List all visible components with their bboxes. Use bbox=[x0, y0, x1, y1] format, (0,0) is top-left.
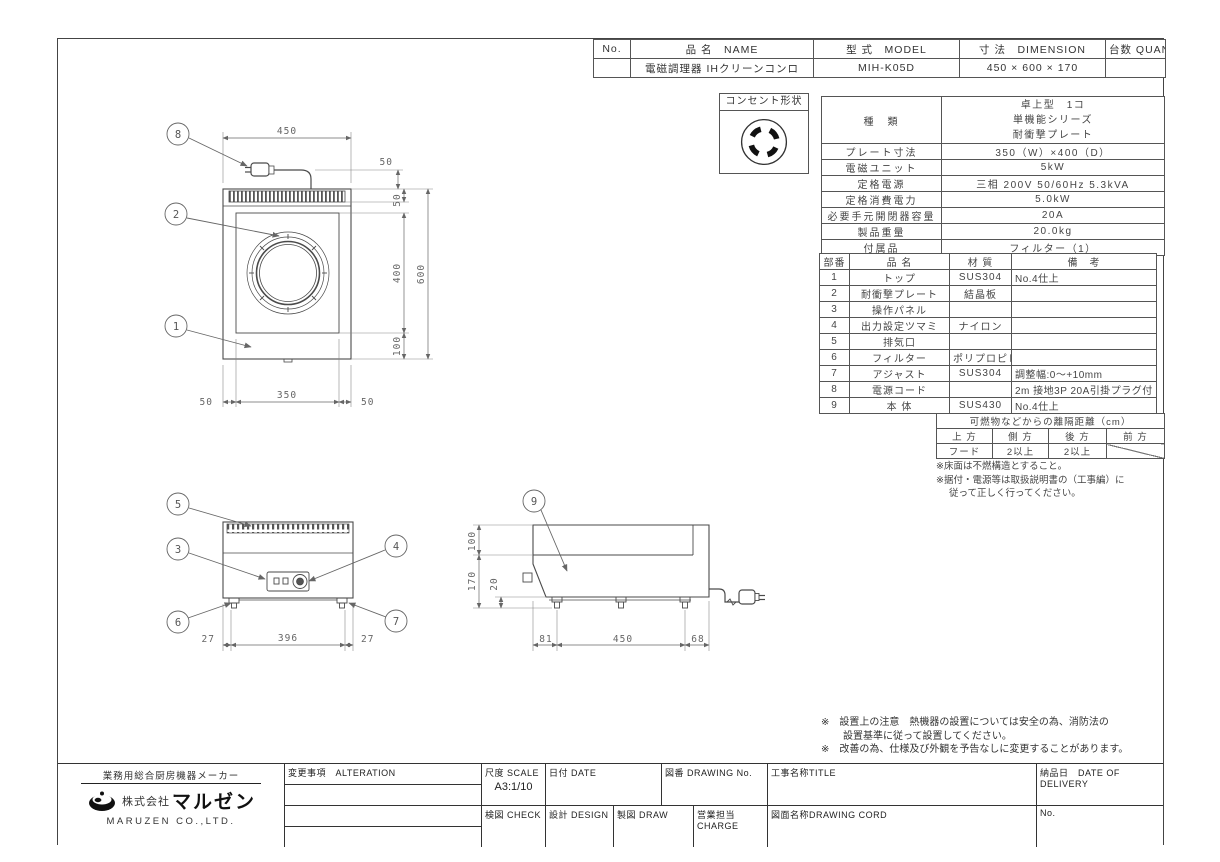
maker-tagline: 業務用総合厨房機器メーカー bbox=[81, 768, 261, 784]
dim-side-foot: 20 bbox=[489, 577, 500, 590]
part-material: ナイロン bbox=[950, 318, 1012, 334]
dim-plan-bottom: 100 bbox=[392, 336, 403, 356]
drawing-no-label: 図番 DRAWING No. bbox=[662, 764, 767, 779]
control-panel bbox=[267, 572, 309, 591]
side-dimensions bbox=[473, 525, 709, 651]
dim-side-back: 81 bbox=[539, 634, 552, 645]
design-label: 設計 DESIGN bbox=[546, 806, 613, 821]
callout-1-label: 1 bbox=[173, 321, 179, 333]
part-remark: No.4仕上 bbox=[1012, 398, 1157, 414]
dim-plan-left: 50 bbox=[200, 397, 213, 408]
clearance-value-row: フード 2以上 2以上 bbox=[937, 444, 1165, 459]
dim-front-span: 396 bbox=[278, 633, 298, 644]
scale-value: A3:1/10 bbox=[482, 781, 545, 793]
spec-value: 5.0kW bbox=[942, 192, 1165, 208]
parts-row: 4出力設定ツマミナイロン bbox=[820, 318, 1157, 334]
clearance-col: 側 方 bbox=[993, 429, 1049, 444]
heater-circle bbox=[247, 232, 329, 314]
part-remark bbox=[1012, 350, 1157, 366]
maruzen-logo-icon bbox=[86, 790, 118, 812]
dim-front-left: 27 bbox=[202, 634, 215, 645]
clearance-col: 後 方 bbox=[1049, 429, 1107, 444]
scale-cell: 尺度 SCALE A3:1/10 bbox=[481, 764, 545, 805]
clearance-notes: ※床面は不燃構造とすること。 ※据付・電源等は取扱説明書の（工事編）に 従って正… bbox=[936, 460, 1186, 501]
title-block: 業務用総合厨房機器メーカー 株式会社 マルゼン MARUZEN CO.,LTD.… bbox=[58, 763, 1163, 847]
note-line: 設置基準に従って設置してください。 bbox=[821, 730, 1171, 744]
draw-label: 製図 DRAW bbox=[614, 806, 693, 821]
product-no bbox=[594, 59, 631, 78]
clearance-title: 可燃物などからの離隔距離（cm） bbox=[937, 414, 1165, 429]
title-label: 工事名称TITLE bbox=[768, 764, 1036, 779]
part-no: 4 bbox=[820, 318, 850, 334]
spec-value: 350（W）×400（D） bbox=[942, 144, 1165, 160]
clearance-table: 可燃物などからの離隔距離（cm） 上 方 側 方 後 方 前 方 フード 2以上… bbox=[936, 413, 1165, 459]
header-row: No. 品 名 NAME 型 式 MODEL 寸 法 DIMENSION 台数 … bbox=[594, 40, 1166, 59]
date-label: 日付 DATE bbox=[546, 764, 661, 779]
part-name: 電源コード bbox=[850, 382, 950, 398]
dim-plan-overall-depth: 600 bbox=[416, 264, 427, 284]
header-table: No. 品 名 NAME 型 式 MODEL 寸 法 DIMENSION 台数 … bbox=[593, 39, 1166, 78]
note-line: ※ 設置上の注意 熱機器の設置については安全の為、消防法の bbox=[821, 716, 1171, 730]
parts-header-row: 部番 品 名 材 質 備 考 bbox=[820, 254, 1157, 270]
drawing-cord-cell: 図面名称DRAWING CORD bbox=[767, 805, 1036, 847]
dim-side-front: 68 bbox=[691, 634, 704, 645]
clearance-value-na bbox=[1107, 444, 1165, 459]
part-material: 結晶板 bbox=[950, 286, 1012, 302]
check-label: 検図 CHECK bbox=[482, 806, 545, 821]
company-name-en: MARUZEN CO.,LTD. bbox=[58, 816, 284, 827]
part-material bbox=[950, 334, 1012, 350]
parts-col: 品 名 bbox=[850, 254, 950, 270]
twist-lock-plug-icon bbox=[736, 114, 792, 170]
spec-label-kind: 種 類 bbox=[822, 97, 942, 144]
spec-label: 定格電源 bbox=[822, 176, 942, 192]
front-view bbox=[223, 522, 353, 608]
spec-value: 20.0kg bbox=[942, 224, 1165, 240]
callout-7-label: 7 bbox=[393, 616, 399, 628]
part-no: 8 bbox=[820, 382, 850, 398]
part-remark bbox=[1012, 334, 1157, 350]
dim-plan-right: 50 bbox=[361, 397, 374, 408]
part-material bbox=[950, 382, 1012, 398]
part-name: トップ bbox=[850, 270, 950, 286]
col-dimension: 寸 法 DIMENSION bbox=[960, 40, 1106, 59]
delivery-label: 納品日 DATE OF DELIVERY bbox=[1037, 764, 1163, 789]
note-line: ※ 改善の為、仕様及び外観を予告なしに変更することがあります。 bbox=[821, 743, 1171, 757]
part-no: 1 bbox=[820, 270, 850, 286]
feet-side bbox=[552, 597, 690, 608]
part-material: SUS430 bbox=[950, 398, 1012, 414]
callout-9-label: 9 bbox=[531, 496, 537, 508]
parts-col: 備 考 bbox=[1012, 254, 1157, 270]
product-dimension: 450 × 600 × 170 bbox=[960, 59, 1106, 78]
plan-view bbox=[223, 163, 351, 362]
no-label: No. bbox=[1037, 806, 1163, 818]
dim-front-right: 27 bbox=[361, 634, 374, 645]
spec-row: 必要手元開閉器容量20A bbox=[822, 208, 1165, 224]
alteration-cell: 変更事項 ALTERATION bbox=[284, 764, 481, 847]
product-quantity bbox=[1106, 59, 1166, 78]
parts-table: 部番 品 名 材 質 備 考 1トップSUS304No.4仕上 2耐衝撃プレート… bbox=[819, 253, 1157, 414]
part-material: ポリプロピレン bbox=[950, 350, 1012, 366]
parts-row: 3操作パネル bbox=[820, 302, 1157, 318]
feet-front bbox=[229, 598, 347, 608]
alteration-label: 変更事項 ALTERATION bbox=[285, 764, 481, 779]
part-remark bbox=[1012, 302, 1157, 318]
alteration-divider bbox=[285, 805, 481, 806]
title-cell: 工事名称TITLE bbox=[767, 764, 1036, 805]
part-name: 操作パネル bbox=[850, 302, 950, 318]
kind-line: 単機能シリーズ bbox=[945, 113, 1161, 128]
clearance-header-row: 上 方 側 方 後 方 前 方 bbox=[937, 429, 1165, 444]
parts-row: 1トップSUS304No.4仕上 bbox=[820, 270, 1157, 286]
spec-row: 定格消費電力5.0kW bbox=[822, 192, 1165, 208]
parts-row: 2耐衝撃プレート結晶板 bbox=[820, 286, 1157, 302]
alteration-divider bbox=[285, 784, 481, 785]
parts-row: 8電源コード2m 接地3P 20A引掛プラグ付 bbox=[820, 382, 1157, 398]
part-remark bbox=[1012, 318, 1157, 334]
dim-plan-cord-gap: 50 bbox=[380, 157, 393, 168]
col-name: 品 名 NAME bbox=[631, 40, 814, 59]
charge-label: 営業担当CHARGE bbox=[694, 806, 767, 831]
dim-plan-vent: 50 bbox=[392, 193, 403, 206]
part-name: 本 体 bbox=[850, 398, 950, 414]
clearance-col: 上 方 bbox=[937, 429, 993, 444]
part-name: 出力設定ツマミ bbox=[850, 318, 950, 334]
spec-label: 電磁ユニット bbox=[822, 160, 942, 176]
part-material: SUS304 bbox=[950, 270, 1012, 286]
spec-value: 5kW bbox=[942, 160, 1165, 176]
col-no: No. bbox=[594, 40, 631, 59]
parts-row: 6フィルターポリプロピレン bbox=[820, 350, 1157, 366]
clearance-note: ※床面は不燃構造とすること。 bbox=[936, 460, 1186, 474]
spec-row: 電磁ユニット5kW bbox=[822, 160, 1165, 176]
part-material bbox=[950, 302, 1012, 318]
check-cell: 検図 CHECK bbox=[481, 805, 545, 847]
company-prefix: 株式会社 bbox=[122, 793, 170, 809]
product-name: 電磁調理器 IHクリーンコンロ bbox=[631, 59, 814, 78]
product-model: MIH-K05D bbox=[814, 59, 960, 78]
charge-cell: 営業担当CHARGE bbox=[693, 805, 767, 847]
spec-row: プレート寸法350（W）×400（D） bbox=[822, 144, 1165, 160]
clearance-note: ※据付・電源等は取扱説明書の（工事編）に bbox=[936, 474, 1186, 488]
dim-side-top: 100 bbox=[467, 531, 478, 551]
callouts bbox=[165, 123, 567, 633]
spec-row: 種 類 卓上型 1コ 単機能シリーズ 耐衝撃プレート bbox=[822, 97, 1165, 144]
kind-line: 耐衝撃プレート bbox=[945, 128, 1161, 143]
company-cell: 業務用総合厨房機器メーカー 株式会社 マルゼン MARUZEN CO.,LTD. bbox=[58, 764, 284, 847]
product-row: 電磁調理器 IHクリーンコンロ MIH-K05D 450 × 600 × 170 bbox=[594, 59, 1166, 78]
parts-row: 5排気口 bbox=[820, 334, 1157, 350]
spec-value: 三相 200V 50/60Hz 5.3kVA bbox=[942, 176, 1165, 192]
callout-3-label: 3 bbox=[175, 544, 181, 556]
side-view bbox=[523, 525, 765, 608]
col-model: 型 式 MODEL bbox=[814, 40, 960, 59]
part-name: フィルター bbox=[850, 350, 950, 366]
installation-notes: ※ 設置上の注意 熱機器の設置については安全の為、消防法の 設置基準に従って設置… bbox=[821, 716, 1171, 757]
parts-row: 7アジャストSUS304調整幅:0〜+10mm bbox=[820, 366, 1157, 382]
part-no: 6 bbox=[820, 350, 850, 366]
parts-col: 部番 bbox=[820, 254, 850, 270]
col-quantity: 台数 QUANTITY bbox=[1106, 40, 1166, 59]
date-cell: 日付 DATE bbox=[545, 764, 661, 805]
dim-plan-plate-depth: 400 bbox=[392, 263, 403, 283]
part-name: 耐衝撃プレート bbox=[850, 286, 950, 302]
part-remark: No.4仕上 bbox=[1012, 270, 1157, 286]
part-remark: 2m 接地3P 20A引掛プラグ付 bbox=[1012, 382, 1157, 398]
spec-label: 製品重量 bbox=[822, 224, 942, 240]
part-material: SUS304 bbox=[950, 366, 1012, 382]
parts-row: 9本 体SUS430No.4仕上 bbox=[820, 398, 1157, 414]
no-cell: No. bbox=[1036, 805, 1163, 847]
spec-row: 製品重量20.0kg bbox=[822, 224, 1165, 240]
part-no: 7 bbox=[820, 366, 850, 382]
alteration-divider bbox=[285, 826, 481, 827]
scale-label: 尺度 SCALE bbox=[482, 764, 545, 779]
dim-side-depth: 450 bbox=[613, 634, 633, 645]
callout-8-label: 8 bbox=[175, 129, 181, 141]
clearance-title-row: 可燃物などからの離隔距離（cm） bbox=[937, 414, 1165, 429]
clearance-col: 前 方 bbox=[1107, 429, 1165, 444]
clearance-value: フード bbox=[937, 444, 993, 459]
drawing-sheet: 450 50 50 400 100 600 50 350 50 bbox=[57, 38, 1164, 845]
clearance-value: 2以上 bbox=[993, 444, 1049, 459]
spec-value: 20A bbox=[942, 208, 1165, 224]
power-cord-plan bbox=[245, 163, 311, 189]
callout-5-label: 5 bbox=[175, 499, 181, 511]
spec-label: 必要手元開閉器容量 bbox=[822, 208, 942, 224]
part-no: 5 bbox=[820, 334, 850, 350]
part-no: 2 bbox=[820, 286, 850, 302]
part-name: アジャスト bbox=[850, 366, 950, 382]
clearance-note: 従って正しく行ってください。 bbox=[936, 487, 1186, 501]
part-no: 3 bbox=[820, 302, 850, 318]
clearance-value: 2以上 bbox=[1049, 444, 1107, 459]
spec-row: 定格電源三相 200V 50/60Hz 5.3kVA bbox=[822, 176, 1165, 192]
draw-cell: 製図 DRAW bbox=[613, 805, 693, 847]
outlet-shape-title: コンセント形状 bbox=[719, 93, 809, 111]
spec-table: 種 類 卓上型 1コ 単機能シリーズ 耐衝撃プレート プレート寸法350（W）×… bbox=[821, 96, 1165, 256]
drawing-no-cell: 図番 DRAWING No. bbox=[661, 764, 767, 805]
kind-line: 卓上型 1コ bbox=[945, 98, 1161, 113]
design-cell: 設計 DESIGN bbox=[545, 805, 613, 847]
power-cord-side bbox=[709, 589, 765, 605]
spec-label: 定格消費電力 bbox=[822, 192, 942, 208]
company-name: マルゼン bbox=[172, 787, 256, 814]
part-remark bbox=[1012, 286, 1157, 302]
part-remark: 調整幅:0〜+10mm bbox=[1012, 366, 1157, 382]
callout-4-label: 4 bbox=[393, 541, 399, 553]
drawing-cord-label: 図面名称DRAWING CORD bbox=[768, 806, 1036, 821]
spec-label: プレート寸法 bbox=[822, 144, 942, 160]
spec-value-kind: 卓上型 1コ 単機能シリーズ 耐衝撃プレート bbox=[942, 97, 1165, 144]
part-no: 9 bbox=[820, 398, 850, 414]
callout-6-label: 6 bbox=[175, 617, 181, 629]
part-name: 排気口 bbox=[850, 334, 950, 350]
dim-plan-plate-width: 350 bbox=[277, 390, 297, 401]
dim-side-overall: 170 bbox=[467, 571, 478, 591]
parts-col: 材 質 bbox=[950, 254, 1012, 270]
callout-2-label: 2 bbox=[173, 209, 179, 221]
outlet-shape-box: コンセント形状 bbox=[719, 93, 809, 174]
delivery-cell: 納品日 DATE OF DELIVERY bbox=[1036, 764, 1163, 805]
dim-plan-width: 450 bbox=[277, 126, 297, 137]
